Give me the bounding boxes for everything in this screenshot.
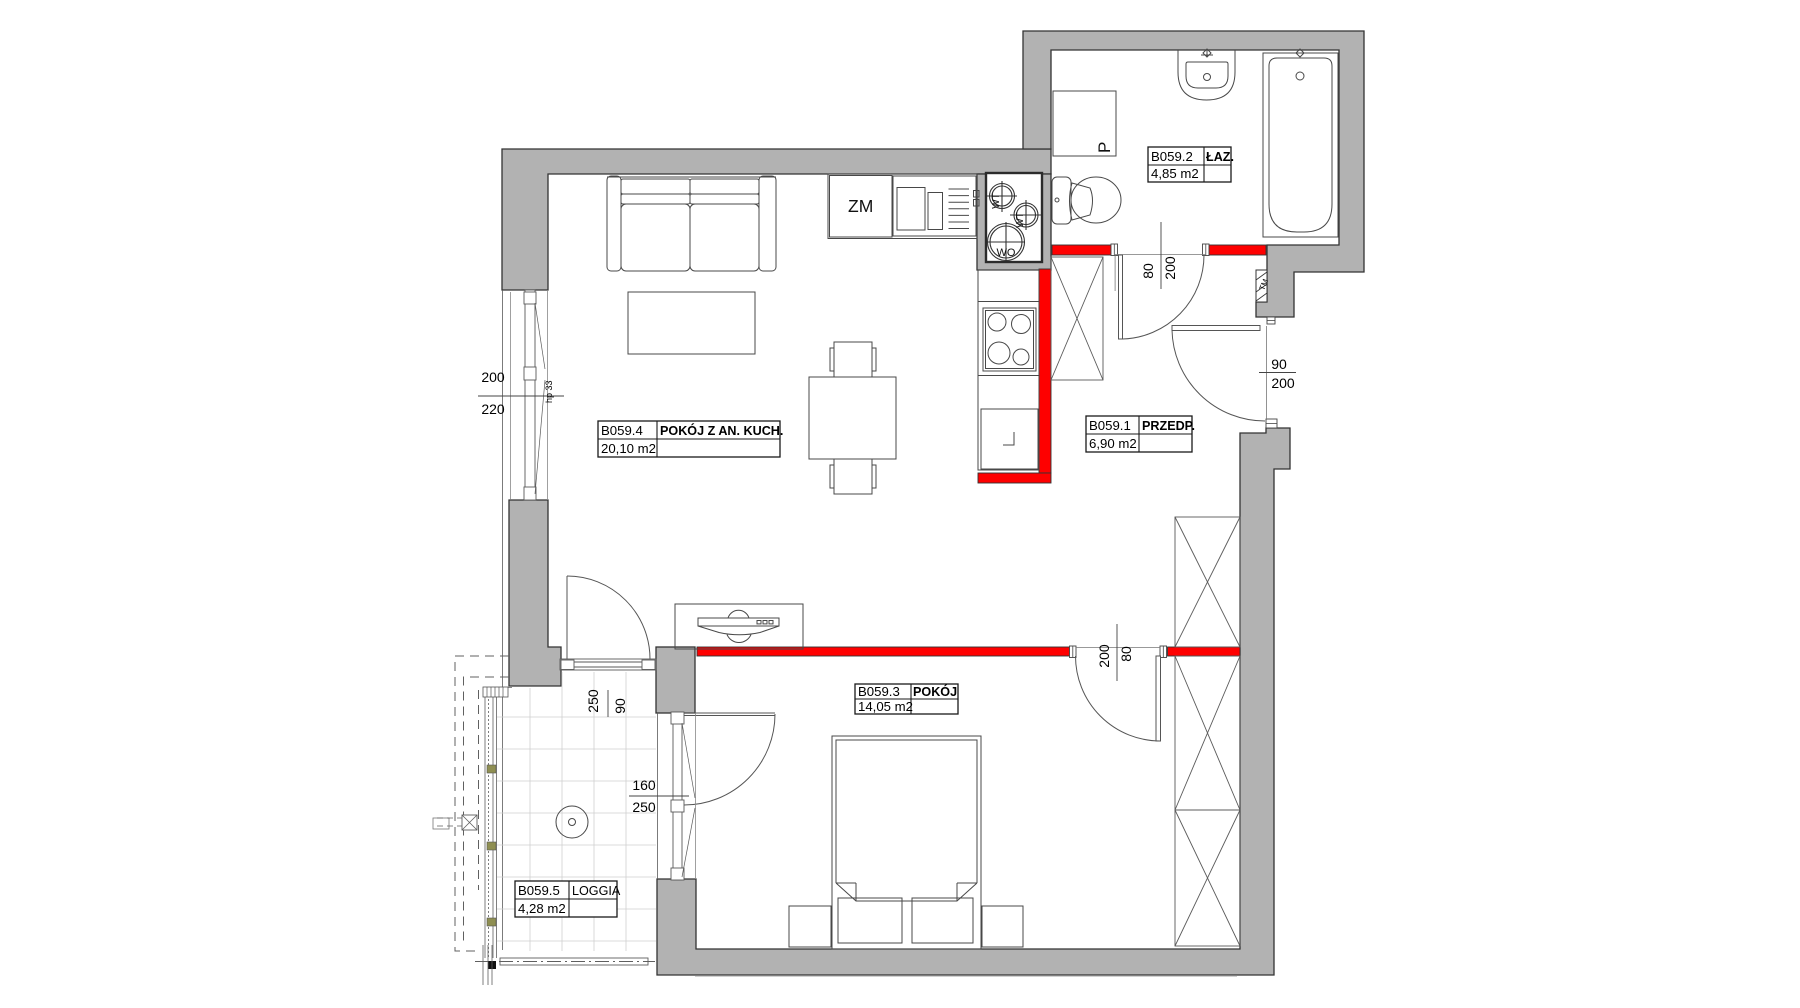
svg-text:4,85 m2: 4,85 m2 bbox=[1151, 166, 1199, 181]
svg-text:14,05 m2: 14,05 m2 bbox=[858, 699, 913, 714]
svg-text:B059.3: B059.3 bbox=[858, 684, 900, 699]
svg-text:WO: WO bbox=[997, 247, 1016, 259]
svg-text:B059.1: B059.1 bbox=[1089, 418, 1131, 433]
svg-text:ZM: ZM bbox=[848, 196, 873, 216]
svg-text:P: P bbox=[1095, 142, 1114, 153]
svg-text:hp 33: hp 33 bbox=[544, 380, 554, 403]
svg-text:80: 80 bbox=[1118, 646, 1134, 662]
svg-text:20,10 m2: 20,10 m2 bbox=[601, 441, 656, 456]
svg-text:ŁAZ.: ŁAZ. bbox=[1206, 150, 1234, 164]
svg-text:PRZEDP.: PRZEDP. bbox=[1142, 419, 1195, 433]
svg-text:200: 200 bbox=[1096, 644, 1112, 668]
svg-text:WT: WT bbox=[1015, 212, 1026, 228]
svg-text:B059.2: B059.2 bbox=[1151, 149, 1193, 164]
svg-text:LOGGIA: LOGGIA bbox=[572, 884, 621, 898]
svg-text:B059.5: B059.5 bbox=[518, 883, 560, 898]
svg-text:160: 160 bbox=[632, 777, 656, 793]
svg-text:B059.4: B059.4 bbox=[601, 423, 643, 438]
svg-text:250: 250 bbox=[585, 689, 601, 713]
svg-text:WT: WT bbox=[991, 193, 1002, 209]
svg-text:200: 200 bbox=[481, 369, 505, 385]
svg-text:6,90 m2: 6,90 m2 bbox=[1089, 436, 1137, 451]
svg-text:90: 90 bbox=[1271, 356, 1287, 372]
svg-text:200: 200 bbox=[1162, 256, 1178, 280]
svg-text:POKÓJ: POKÓJ bbox=[913, 684, 957, 699]
svg-text:80: 80 bbox=[1140, 263, 1156, 279]
svg-text:90: 90 bbox=[612, 698, 628, 714]
svg-text:200: 200 bbox=[1271, 375, 1295, 391]
svg-text:POKÓJ Z AN. KUCH.: POKÓJ Z AN. KUCH. bbox=[660, 423, 783, 438]
svg-text:4,28 m2: 4,28 m2 bbox=[518, 901, 566, 916]
svg-text:220: 220 bbox=[481, 401, 505, 417]
svg-text:250: 250 bbox=[632, 799, 656, 815]
